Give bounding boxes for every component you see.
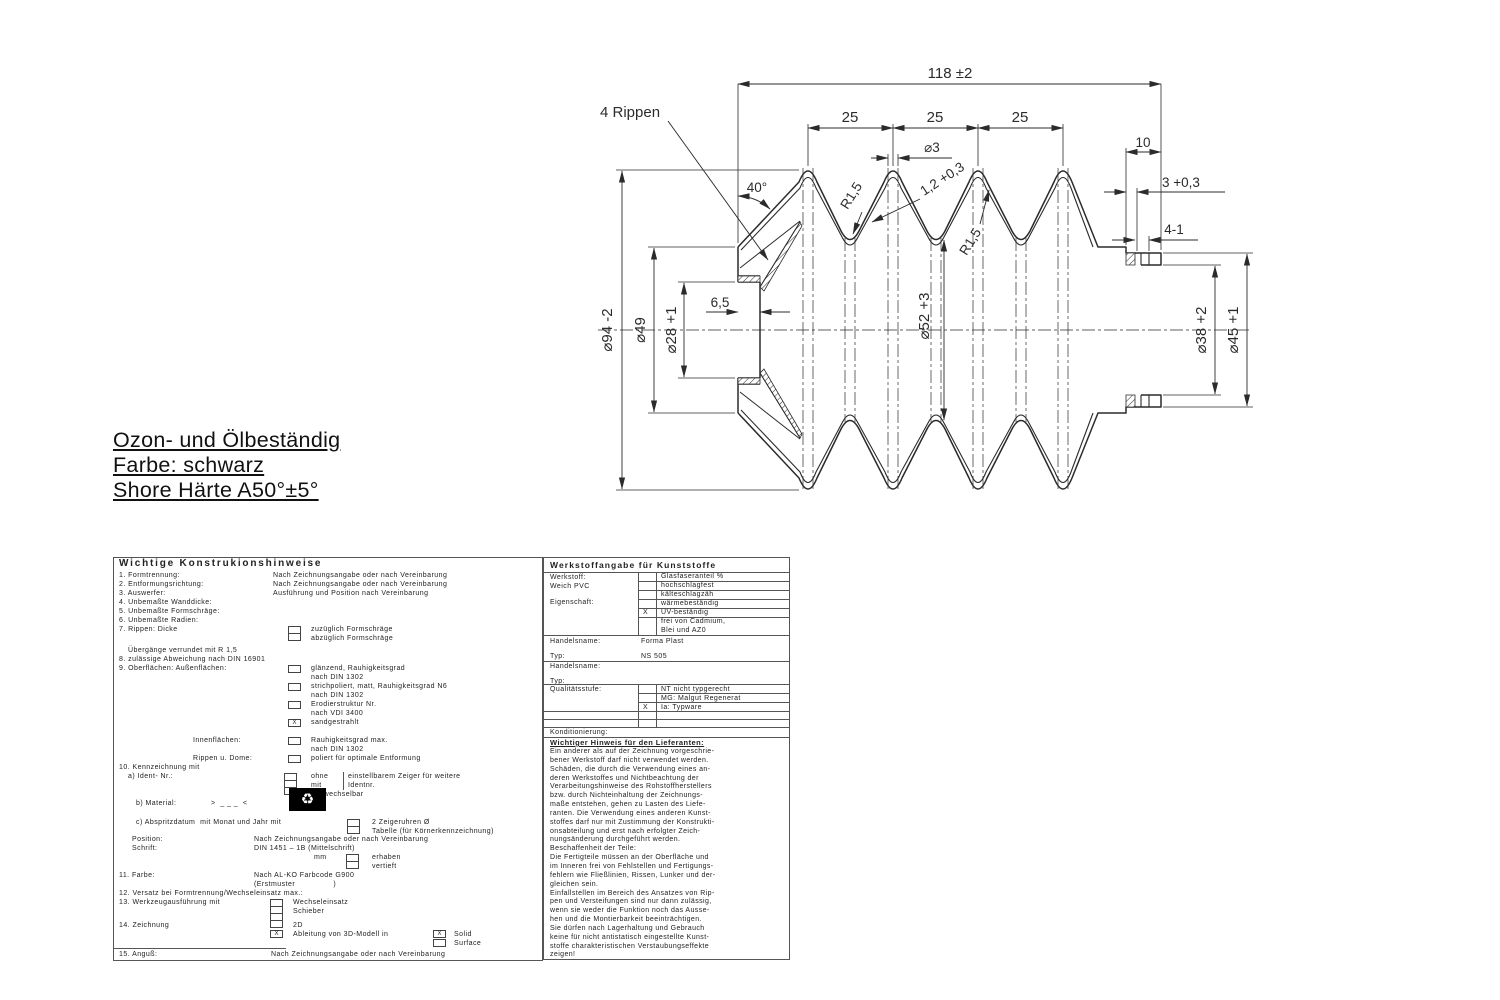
field-label: 13. Werkzeugausführung mit: [119, 899, 220, 907]
option-label: Erodierstruktur Nr.: [311, 701, 376, 709]
divider: [544, 661, 789, 662]
option-label: Glasfaseranteil %: [661, 573, 724, 581]
label-step: 4-1: [1164, 222, 1184, 237]
option-label: glänzend, Rauhigkeitsgrad: [311, 665, 405, 673]
divider: [343, 772, 344, 790]
option-label: hochschlagfest: [661, 582, 714, 590]
option-label: Rauhigkeitsgrad max.: [311, 737, 388, 745]
checkbox[interactable]: [288, 683, 301, 691]
field-label: Übergänge verrundet mit R 1,5: [128, 647, 237, 655]
field-label: Schrift:: [132, 845, 157, 853]
field-label: 14. Zeichnung: [119, 922, 169, 930]
checkbox[interactable]: [347, 826, 360, 834]
divider: [638, 693, 789, 694]
option-label: abzüglich Formschräge: [311, 635, 393, 643]
field-label: Typ:: [550, 653, 565, 661]
label-sleeve-length: 10: [1135, 135, 1150, 150]
option-label: UV-beständig: [661, 609, 708, 617]
label-dia-28: ⌀28 +1: [663, 307, 680, 354]
label-dia-49: ⌀49: [632, 317, 649, 343]
option-label: Tabelle (für Körnerkennzeichnung): [372, 828, 494, 836]
field-label: 7. Rippen: Dicke: [119, 626, 178, 634]
divider: [638, 702, 789, 703]
note-line: Farbe: schwarz: [113, 453, 340, 478]
material-spec-table: Werkstoffangabe für Kunststoffe Werkstof…: [543, 557, 790, 960]
field-label: Position:: [132, 836, 163, 844]
field-label: Handelsname:: [550, 638, 601, 646]
field-label: Handelsname:: [550, 663, 601, 671]
field-value: DIN 1451 – 1B (Mittelschrift): [254, 845, 355, 853]
label-radius-1: R1,5: [837, 180, 865, 212]
field-label: Konditionierung:: [550, 729, 608, 737]
label-pitch-2: 25: [927, 109, 944, 126]
notice-title: Wichtiger Hinweis für den Lieferanten:: [550, 739, 704, 747]
label-dia-38: ⌀38 +2: [1193, 307, 1210, 354]
option-label: Blei und AZ0: [661, 627, 706, 635]
label-tip-diameter: ⌀3: [924, 140, 940, 155]
table-header: Werkstoffangabe für Kunststoffe: [550, 561, 716, 569]
field-value: (Erstmuster ): [254, 881, 336, 889]
label-wall-thickness: 1,2 +0,3: [917, 159, 966, 198]
field-label: 6. Unbemaßte Radien:: [119, 617, 198, 625]
field-label: mm: [314, 854, 327, 862]
field-label: 5. Unbemaßte Formschräge:: [119, 608, 220, 616]
option-label: Ableitung von 3D-Modell in: [293, 931, 388, 939]
field-value: Weich PVC: [550, 583, 590, 591]
dimension-labels: 4 Rippen 118 ±2 25 25 25 ⌀3 1,2 +0,3 40°…: [599, 65, 1242, 354]
option-label: einstellbarem Zeiger für weitere: [348, 773, 460, 781]
page: { "marks": { "x": "X", "recycle": "♻" },…: [0, 0, 1500, 1000]
field-label: Qualitätsstufe:: [550, 686, 602, 694]
field-value: Nach Zeichnungsangabe oder nach Vereinba…: [254, 836, 428, 844]
checkbox-checked[interactable]: X: [433, 930, 446, 938]
divider: [544, 635, 789, 636]
option-label: 2D: [293, 922, 303, 930]
option-label: ohne: [311, 773, 328, 781]
field-label: 10. Kennzeichnung mit: [119, 764, 200, 772]
option-label: 2 Zeigeruhren Ø: [372, 819, 430, 827]
field-label: Innenflächen:: [193, 737, 241, 745]
option-label: nach DIN 1302: [311, 674, 364, 682]
label-collar-width: 6,5: [711, 295, 730, 310]
divider: [544, 719, 789, 720]
field-label: 15. Anguß:: [119, 951, 157, 959]
label-overall-length: 118 ±2: [928, 65, 973, 82]
field-value: Ausführung und Position nach Vereinbarun…: [273, 590, 428, 598]
divider: [638, 684, 639, 727]
label-cone-angle: 40°: [747, 180, 767, 195]
field-label: c) Abspritzdatum mit Monat und Jahr mit: [136, 819, 281, 827]
field-value: > _ _ _ <: [211, 800, 247, 808]
label-dia-94: ⌀94 -2: [599, 308, 616, 351]
field-label: Rippen u. Dome:: [193, 755, 252, 763]
option-label: nach DIN 1302: [311, 746, 364, 754]
table-header: Wichtige Konstrukionshinweise: [119, 560, 322, 568]
field-value: Nach Zeichnungsangabe oder nach Vereinba…: [273, 572, 447, 580]
field-label: 12. Versatz bei Formtrennung/Wechseleins…: [119, 890, 303, 898]
field-label: Werkstoff:: [550, 574, 586, 582]
label-rippen: 4 Rippen: [600, 104, 660, 121]
option-label: Schieber: [293, 908, 324, 916]
note-line: Ozon- und Ölbeständig: [113, 428, 340, 453]
note-line: Shore Härte A50°±5°: [113, 478, 340, 503]
option-label: strichpoliert, matt, Rauhigkeitsgrad N6: [311, 683, 447, 691]
checkbox[interactable]: [288, 737, 301, 745]
field-label: 9. Oberflächen: Außenflächen:: [119, 665, 227, 673]
field-label: 2. Entformungsrichtung:: [119, 581, 204, 589]
field-label: 8. zulässige Abweichung nach DIN 16901: [119, 656, 265, 664]
checkbox[interactable]: [346, 861, 359, 869]
checkbox-checked[interactable]: X: [270, 930, 283, 938]
checkbox[interactable]: [288, 633, 301, 641]
option-label: nach DIN 1302: [311, 692, 364, 700]
field-label: Eigenschaft:: [550, 599, 594, 607]
field-label: 4. Unbemaßte Wanddicke:: [119, 599, 212, 607]
divider: [544, 727, 789, 728]
checkbox[interactable]: [288, 701, 301, 709]
option-label: erhaben: [372, 854, 401, 862]
field-label: 3. Auswerfer:: [119, 590, 166, 598]
checkbox[interactable]: [288, 755, 301, 763]
label-dia-52: ⌀52 +3: [916, 293, 933, 340]
option-label: poliert für optimale Entformung: [311, 755, 421, 763]
recycling-icon: ♻: [289, 788, 326, 811]
field-label: a) Ident- Nr.:: [128, 773, 173, 781]
checkbox[interactable]: [433, 939, 446, 947]
option-label: Solid: [454, 931, 472, 939]
option-label: zuzüglich Formschräge: [311, 626, 393, 634]
checkbox-checked[interactable]: X: [288, 719, 301, 727]
field-value: Nach Zeichnungsangabe oder nach Vereinba…: [271, 951, 445, 959]
option-label: nach VDI 3400: [311, 710, 363, 718]
option-label: wärmebeständig: [661, 600, 719, 608]
checkbox[interactable]: [288, 665, 301, 673]
option-label: Wechseleinsatz: [293, 899, 348, 907]
option-label: vertieft: [372, 863, 397, 871]
label-sleeve-wall: 3 +0,3: [1162, 175, 1200, 190]
divider: [114, 948, 286, 949]
option-label: Identnr.: [348, 782, 375, 790]
divider: [544, 711, 789, 712]
field-value: Nach AL-KO Farbcode G900: [254, 872, 354, 880]
option-label: frei von Cadmium,: [661, 618, 725, 626]
field-value: Nach Zeichnungsangabe oder nach Vereinba…: [273, 581, 447, 589]
material-notes: Ozon- und Ölbeständig Farbe: schwarz Sho…: [113, 428, 340, 503]
field-value: Forma Plast: [641, 638, 684, 646]
divider: [656, 684, 657, 727]
checkbox[interactable]: [270, 920, 283, 928]
label-pitch-1: 25: [842, 109, 859, 126]
label-dia-45: ⌀45 +1: [1225, 307, 1242, 354]
label-pitch-3: 25: [1012, 109, 1029, 126]
label-radius-2: R1,5: [956, 226, 984, 258]
field-label: 11. Farbe:: [119, 872, 155, 880]
supplier-notice-text: Ein anderer als auf der Zeichnung vorges…: [550, 748, 786, 960]
field-value: NS 505: [641, 653, 667, 661]
option-label: kälteschlagzäh: [661, 591, 714, 599]
divider: [544, 684, 789, 685]
construction-notes-table: Wichtige Konstrukionshinweise 1. Formtre…: [113, 557, 543, 961]
option-label: sandgestrahlt: [311, 719, 359, 727]
field-label: 1. Formtrennung:: [119, 572, 180, 580]
option-label: Surface: [454, 940, 481, 948]
field-label: b) Material:: [136, 800, 176, 808]
checkbox-mark[interactable]: X: [643, 609, 648, 617]
